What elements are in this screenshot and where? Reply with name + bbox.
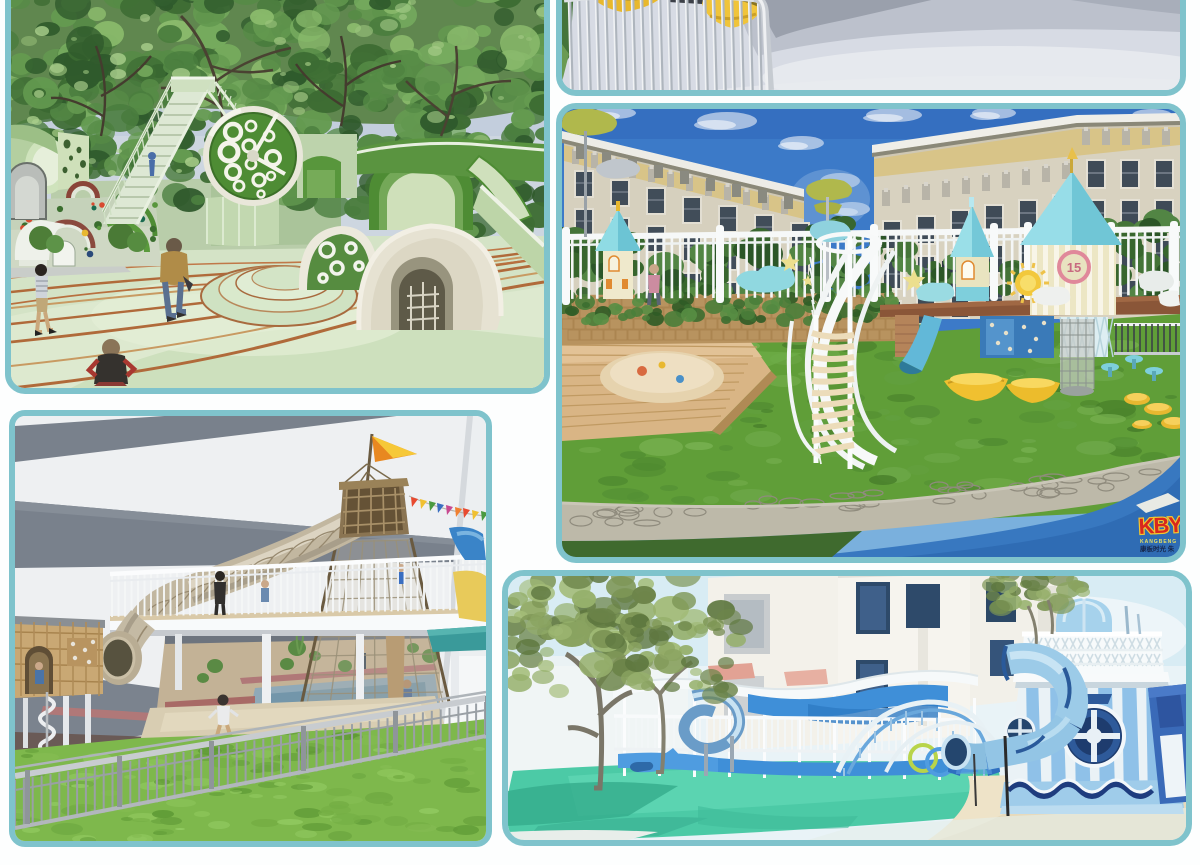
svg-text:15: 15: [1067, 260, 1081, 275]
svg-text:康板时光 朱: 康板时光 朱: [1140, 544, 1175, 553]
svg-text:KANGBENG: KANGBENG: [1140, 539, 1177, 545]
svg-text:KBY: KBY: [1138, 512, 1180, 539]
